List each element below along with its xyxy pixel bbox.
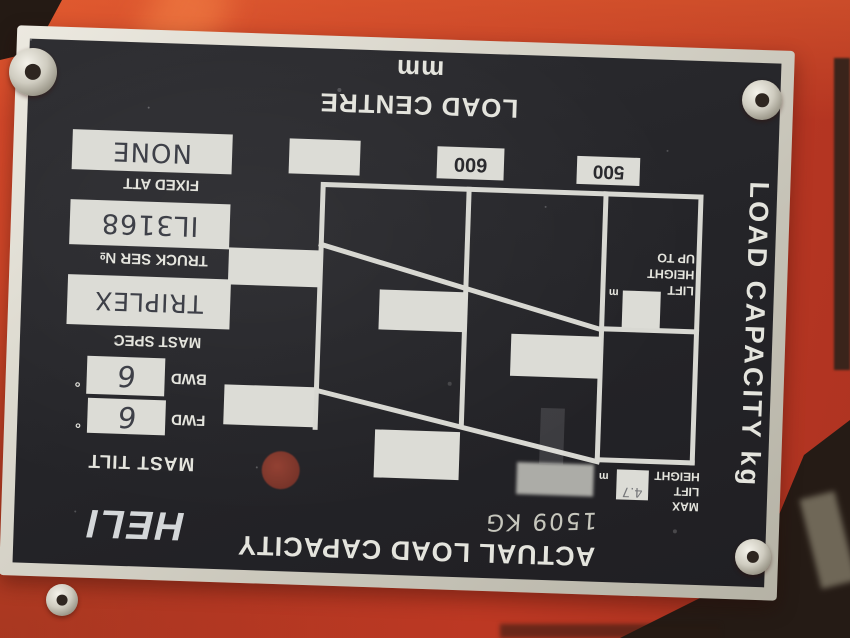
bottom-edge-shadow: [500, 624, 720, 638]
max-lift-line1: MAX: [615, 496, 699, 514]
load-centre-box-500: 500: [576, 156, 640, 186]
photo-forklift-plate: LOAD CENTRE mm 600 500 LOAD CAPACITY kg …: [0, 0, 850, 638]
rivet-bottom-right: [735, 539, 771, 575]
lift-height-unit: m: [608, 286, 620, 298]
fwd-value-box: 6: [87, 398, 166, 436]
lift-height-line1: LIFT: [616, 280, 694, 299]
load-centre-box-600: 600: [436, 146, 504, 180]
rivet-top-right: [742, 80, 782, 120]
fixed-att-box: NONE: [72, 129, 233, 174]
load-centre-value-2: 600: [453, 151, 487, 175]
dark-strip-right-edge: [834, 58, 850, 370]
fwd-label: FWD: [171, 410, 206, 428]
tilt-row-fwd: FWD 6 °: [53, 396, 206, 439]
capacity-plate: LOAD CENTRE mm 600 500 LOAD CAPACITY kg …: [0, 25, 795, 600]
load-centre-value-3: 500: [592, 159, 624, 182]
mast-spec-box: TRIPLEX: [66, 274, 231, 329]
bwd-value: 6: [114, 359, 137, 393]
plate-face: LOAD CENTRE mm 600 500 LOAD CAPACITY kg …: [13, 39, 782, 588]
tilt-row-bwd: BWD 6 °: [54, 354, 207, 399]
load-centre-box-blank: [289, 138, 361, 175]
truck-ser-value: IL3168: [100, 207, 199, 241]
paint-smudge: [516, 462, 594, 497]
fixed-att-value: NONE: [112, 135, 193, 168]
max-lift-unit: m: [598, 470, 610, 482]
rivet-top-left: [9, 48, 57, 96]
max-lift-value-handwritten: 4.7: [615, 470, 650, 499]
rivet-bottom-left: [46, 584, 78, 616]
mast-spec-value: TRIPLEX: [94, 285, 204, 318]
bwd-label: BWD: [171, 369, 207, 387]
truck-ser-box: IL3168: [69, 199, 230, 249]
mast-tilt-label: MAST TILT: [71, 448, 212, 474]
heli-logo: HELI: [57, 497, 213, 552]
bwd-value-box: 6: [86, 356, 165, 397]
bwd-degree-symbol: °: [74, 373, 81, 390]
lift-height-line2: HEIGHT: [616, 264, 694, 283]
lift-height-line3: UP TO: [617, 248, 695, 267]
fwd-value: 6: [115, 400, 138, 434]
fwd-degree-symbol: °: [75, 414, 82, 431]
lift-height-up-to-block: LIFT HEIGHT UP TO: [616, 248, 696, 299]
